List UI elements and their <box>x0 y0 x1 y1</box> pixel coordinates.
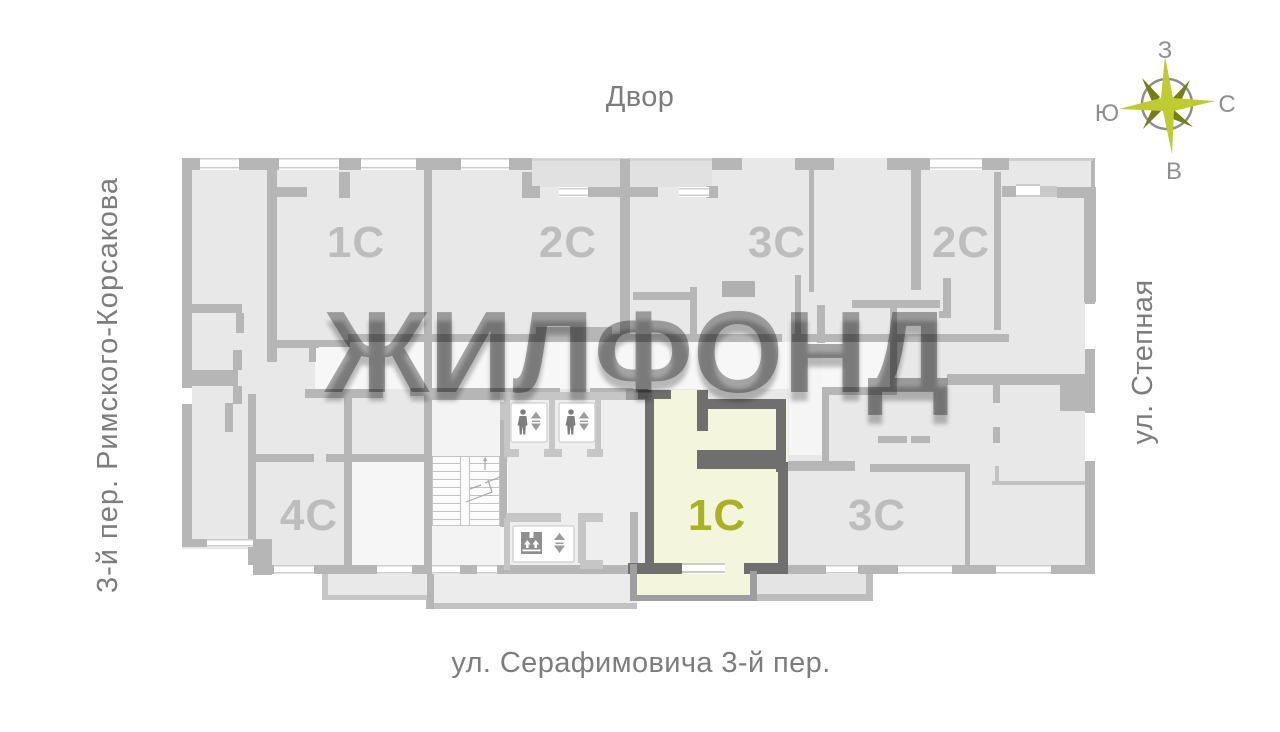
svg-text:ул. Степная: ул. Степная <box>1127 280 1159 445</box>
svg-text:С: С <box>1218 91 1235 118</box>
svg-text:4С: 4С <box>280 491 338 540</box>
svg-text:Двор: Двор <box>606 81 675 113</box>
svg-text:2С: 2С <box>932 218 990 267</box>
svg-text:ул. Серафимовича 3-й пер.: ул. Серафимовича 3-й пер. <box>451 647 830 679</box>
svg-text:1С: 1С <box>688 491 746 540</box>
svg-text:3С: 3С <box>748 218 806 267</box>
svg-text:2С: 2С <box>539 218 597 267</box>
svg-text:ЖИЛФОНД: ЖИЛФОНД <box>323 287 949 417</box>
svg-text:Ю: Ю <box>1095 100 1119 127</box>
svg-text:3С: 3С <box>848 491 906 540</box>
svg-text:3-й пер. Римского-Корсакова: 3-й пер. Римского-Корсакова <box>92 177 124 593</box>
svg-text:З: З <box>1158 37 1173 64</box>
svg-text:В: В <box>1166 158 1182 185</box>
svg-text:1С: 1С <box>327 218 385 267</box>
